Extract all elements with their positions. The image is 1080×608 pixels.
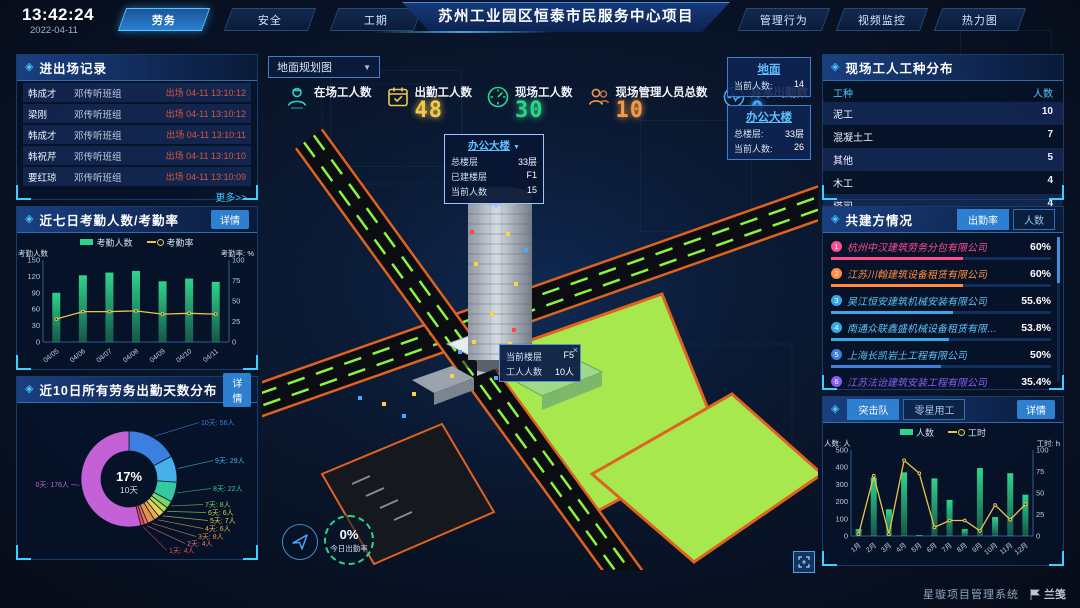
nav-tab[interactable]: 安全 <box>224 8 316 31</box>
top-bar: 13:42:24 2022-04-11 劳务安全工期 苏州工业园区恒泰市民服务中… <box>0 0 1080 44</box>
tooltip-row: 当前人数:26 <box>734 142 804 155</box>
panel-diamond-icon: ◈ <box>25 214 33 225</box>
worker-types-panel: ◈ 现场工人工种分布 工种人数 泥工10混凝土工7其他5木工4塔司4 <box>822 54 1064 200</box>
entry-exit-panel: ◈ 进出场记录 韩成才邓传听班组出场 04-11 13:10:12梁刚邓传听班组… <box>16 54 258 200</box>
scrollbar-thumb[interactable] <box>1057 237 1060 283</box>
svg-text:75: 75 <box>232 276 240 285</box>
partner-row: 3吴江恒安建筑机械安装有限公司55.6% <box>831 293 1051 314</box>
building-tooltip-title[interactable]: 办公大楼▼ <box>451 138 537 153</box>
partner-row: 2江苏川翰建筑设备租赁有限公司60% <box>831 266 1051 287</box>
attendance-panel: ◈ 近七日考勤人数/考勤率 详情 考勤人数考勤率 030609012015002… <box>16 206 258 370</box>
svg-text:17%: 17% <box>116 469 142 484</box>
svg-text:0天: 176人: 0天: 176人 <box>36 481 69 489</box>
svg-text:100: 100 <box>835 514 848 523</box>
people-icon <box>586 84 612 115</box>
panel-title: 近七日考勤人数/考勤率 <box>39 210 178 229</box>
svg-text:3月: 3月 <box>880 541 894 554</box>
svg-text:2天: 4人: 2天: 4人 <box>187 540 213 548</box>
fullscreen-icon <box>798 556 810 568</box>
svg-text:0: 0 <box>844 532 848 541</box>
fullscreen-button[interactable] <box>793 551 815 573</box>
partners-panel: ◈ 共建方情况 出勤率人数 1杭州中汉建筑劳务分包有限公司60%2江苏川翰建筑设… <box>822 206 1064 390</box>
svg-text:10天: 56人: 10天: 56人 <box>201 419 234 427</box>
tooltip-row: 总楼层:33层 <box>734 127 804 140</box>
gauge-value: 0% <box>340 527 359 542</box>
svg-text:50: 50 <box>232 297 240 306</box>
pennant-icon <box>1029 588 1041 601</box>
svg-text:4月: 4月 <box>895 541 909 554</box>
gauge-label: 今日出勤率 <box>330 543 368 554</box>
map-float-panels: 地面当前人数:14办公大楼总楼层:33层当前人数:26 <box>727 57 811 168</box>
svg-text:04/11: 04/11 <box>202 348 220 364</box>
clock-date: 2022-04-11 <box>30 25 78 36</box>
svg-text:9天: 29人: 9天: 29人 <box>215 457 245 465</box>
calendar-icon <box>385 84 411 115</box>
tooltip-row: 总楼层33层 <box>451 155 537 168</box>
panel-title: 共建方情况 <box>845 210 913 229</box>
panel-diamond-icon: ◈ <box>25 62 33 73</box>
svg-text:11月: 11月 <box>998 541 1014 556</box>
worker-type-row: 木工4 <box>823 171 1063 194</box>
dashboard: 13:42:24 2022-04-11 劳务安全工期 苏州工业园区恒泰市民服务中… <box>0 0 1080 608</box>
partner-rows: 1杭州中汉建筑劳务分包有限公司60%2江苏川翰建筑设备租赁有限公司60%3吴江恒… <box>823 233 1063 387</box>
partner-row: 5上海长凯岩土工程有限公司50% <box>831 347 1051 368</box>
title-streak <box>372 31 552 33</box>
svg-text:考勤人数: 考勤人数 <box>18 248 48 258</box>
panel-title: 近10日所有劳务出勤天数分布 <box>39 380 217 399</box>
team-tab[interactable]: 零星用工 <box>903 399 965 420</box>
svg-text:90: 90 <box>32 288 40 297</box>
svg-text:考勤率: %: 考勤率: % <box>221 248 255 258</box>
stat-gauge: 现场工人数30 <box>485 84 573 122</box>
entry-exit-row: 韩成才邓传听班组出场 04-11 13:10:11 <box>23 125 251 144</box>
partner-tabs: 出勤率人数 <box>957 209 1055 230</box>
panel-diamond-icon: ◈ <box>831 214 839 225</box>
attendance-gauge: 0% 今日出勤率 <box>324 515 374 565</box>
panel-title: 进出场记录 <box>39 58 107 77</box>
map-info-panel-title[interactable]: 办公大楼 <box>734 109 804 125</box>
svg-text:25: 25 <box>1036 510 1044 519</box>
tooltip-row: 当前楼层F5 <box>506 350 574 363</box>
team-panel: ◈ 突击队零星用工 详情 人数工时 0100200300400500025507… <box>822 396 1064 566</box>
worker-type-rows: 泥工10混凝土工7其他5木工4塔司4 <box>823 102 1063 217</box>
svg-text:4天: 6人: 4天: 6人 <box>205 525 231 533</box>
panel-diamond-icon: ◈ <box>831 404 839 415</box>
tooltip-row: 工人人数10人 <box>506 365 574 378</box>
more-link[interactable]: 更多>> <box>17 188 257 206</box>
worker-type-row: 泥工10 <box>823 102 1063 125</box>
svg-text:04/10: 04/10 <box>175 348 193 364</box>
svg-text:30: 30 <box>32 321 40 330</box>
svg-text:工时: h: 工时: h <box>1037 438 1060 448</box>
svg-text:12月: 12月 <box>1013 541 1030 556</box>
system-name: 星璇项目管理系统 <box>923 586 1019 602</box>
partner-row: 6江苏法诒建筑安装工程有限公司35.4% <box>831 374 1051 387</box>
detail-button[interactable]: 详情 <box>211 210 249 229</box>
nav-tab[interactable]: 工期 <box>330 8 422 31</box>
clock-time: 13:42:24 <box>22 5 94 25</box>
entry-exit-row: 韩成才邓传听班组出场 04-11 13:10:12 <box>23 83 251 102</box>
svg-text:5天: 7人: 5天: 7人 <box>210 517 236 525</box>
compass-button[interactable] <box>282 524 318 560</box>
gauge-icon <box>485 84 511 115</box>
nav-tab[interactable]: 劳务 <box>118 8 210 31</box>
team-chart: 01002003004005000255075100人数: 人工时: h1月2月… <box>823 438 1061 562</box>
svg-text:25: 25 <box>232 317 240 326</box>
svg-text:8天: 22人: 8天: 22人 <box>213 485 243 493</box>
svg-text:04/07: 04/07 <box>96 348 114 364</box>
stat-people: 现场管理人员总数10 <box>586 84 708 122</box>
svg-text:1月: 1月 <box>849 541 863 554</box>
tooltip-row: 当前人数:14 <box>734 79 804 92</box>
map-view-select[interactable]: 地面规划图 ▼ <box>268 56 380 78</box>
dropdown-arrow-icon: ▼ <box>513 144 520 151</box>
svg-text:400: 400 <box>835 463 848 472</box>
partner-row: 4南通众联鑫盛机械设备租赁有限公司53.8% <box>831 320 1051 341</box>
tooltip-row: 当前人数15 <box>451 185 537 198</box>
svg-text:10天: 10天 <box>120 485 138 495</box>
entry-exit-row: 梁刚邓传听班组出场 04-11 13:10:12 <box>23 104 251 123</box>
entry-exit-rows: 韩成才邓传听班组出场 04-11 13:10:12梁刚邓传听班组出场 04-11… <box>17 83 257 186</box>
svg-text:120: 120 <box>27 272 40 281</box>
building-tooltip-rows: 总楼层33层已建楼层F1当前人数15 <box>451 155 537 198</box>
scrollbar-track <box>1057 237 1060 381</box>
stat-calendar: 出勤工人数48 <box>385 84 473 122</box>
floor-tooltip: × 当前楼层F5工人人数10人 <box>499 344 581 382</box>
team-tabs: 突击队零星用工 <box>847 399 965 420</box>
svg-text:0: 0 <box>1036 532 1040 541</box>
svg-text:7月: 7月 <box>940 541 954 554</box>
worker-type-header: 工种人数 <box>823 81 1063 102</box>
dropdown-arrow-icon: ▼ <box>363 63 371 72</box>
panel-diamond-icon: ◈ <box>831 62 839 73</box>
footer: 星璇项目管理系统 兰笺 <box>923 586 1066 602</box>
stat-worker: 在场工人数 <box>284 84 372 122</box>
worker-type-row: 混凝土工7 <box>823 125 1063 148</box>
worker-type-row: 其他5 <box>823 148 1063 171</box>
entry-exit-row: 韩祝芹邓传听班组出场 04-11 13:10:10 <box>23 146 251 165</box>
svg-text:200: 200 <box>835 497 848 506</box>
partner-row: 1杭州中汉建筑劳务分包有限公司60% <box>831 239 1051 260</box>
svg-text:0: 0 <box>232 338 236 347</box>
detail-button[interactable]: 详情 <box>223 373 251 407</box>
svg-text:04/08: 04/08 <box>122 348 140 364</box>
map-view-label: 地面规划图 <box>277 59 332 75</box>
partner-tab[interactable]: 出勤率 <box>957 209 1009 230</box>
brand-logo: 兰笺 <box>1029 586 1066 602</box>
floor-tooltip-rows: 当前楼层F5工人人数10人 <box>506 350 574 378</box>
nav-tab[interactable]: 管理行为 <box>738 8 830 31</box>
team-legend: 人数工时 <box>823 426 1063 438</box>
svg-text:8月: 8月 <box>955 541 969 554</box>
partner-tab[interactable]: 人数 <box>1013 209 1055 230</box>
tooltip-row: 已建楼层F1 <box>451 170 537 183</box>
svg-text:60: 60 <box>32 305 40 314</box>
team-tab[interactable]: 突击队 <box>847 399 899 420</box>
map-info-panel-title[interactable]: 地面 <box>734 61 804 77</box>
map-info-panel: 地面当前人数:14 <box>727 57 811 97</box>
distribution-chart: 10天: 56人9天: 29人8天: 22人7天: 8人6天: 6人5天: 7人… <box>17 403 257 555</box>
nav-left: 劳务安全工期 <box>122 8 418 31</box>
nav-right: 管理行为视频监控热力图 <box>742 8 1022 31</box>
svg-text:7天: 8人: 7天: 8人 <box>205 501 231 509</box>
svg-text:300: 300 <box>835 480 848 489</box>
attendance-chart: 03060901201500255075100考勤人数考勤率: %04/0504… <box>17 248 255 366</box>
svg-text:04/09: 04/09 <box>149 348 167 364</box>
svg-text:2月: 2月 <box>864 541 878 554</box>
distribution-panel: ◈ 近10日所有劳务出勤天数分布 详情 10天: 56人9天: 29人8天: 2… <box>16 376 258 560</box>
svg-text:04/06: 04/06 <box>69 348 87 364</box>
nav-tab[interactable]: 视频监控 <box>836 8 928 31</box>
detail-button[interactable]: 详情 <box>1017 400 1055 419</box>
svg-text:人数: 人: 人数: 人 <box>824 438 851 448</box>
page-title: 苏州工业园区恒泰市民服务中心项目 <box>402 2 730 32</box>
panel-diamond-icon: ◈ <box>25 384 33 395</box>
panel-title: 现场工人工种分布 <box>845 58 953 77</box>
svg-text:1天: 4人: 1天: 4人 <box>169 547 195 555</box>
svg-text:6月: 6月 <box>925 541 939 554</box>
svg-text:6天: 6人: 6天: 6人 <box>208 509 234 517</box>
svg-text:3天: 8人: 3天: 8人 <box>198 533 224 541</box>
attendance-legend: 考勤人数考勤率 <box>17 236 257 248</box>
building-tooltip: 办公大楼▼ 总楼层33层已建楼层F1当前人数15 <box>444 134 544 204</box>
worker-icon <box>284 84 310 115</box>
entry-exit-row: 要红琼邓传听班组出场 04-11 13:10:09 <box>23 167 251 186</box>
map-info-panel: 办公大楼总楼层:33层当前人数:26 <box>727 105 811 160</box>
svg-text:9月: 9月 <box>971 541 985 554</box>
svg-text:04/05: 04/05 <box>42 348 60 364</box>
svg-text:0: 0 <box>36 338 40 347</box>
close-icon[interactable]: × <box>573 345 578 355</box>
svg-text:75: 75 <box>1036 467 1044 476</box>
navigation-arrow-icon <box>290 532 310 552</box>
svg-text:50: 50 <box>1036 489 1044 498</box>
nav-tab[interactable]: 热力图 <box>934 8 1026 31</box>
svg-text:5月: 5月 <box>910 541 924 554</box>
svg-text:10月: 10月 <box>983 541 1000 556</box>
